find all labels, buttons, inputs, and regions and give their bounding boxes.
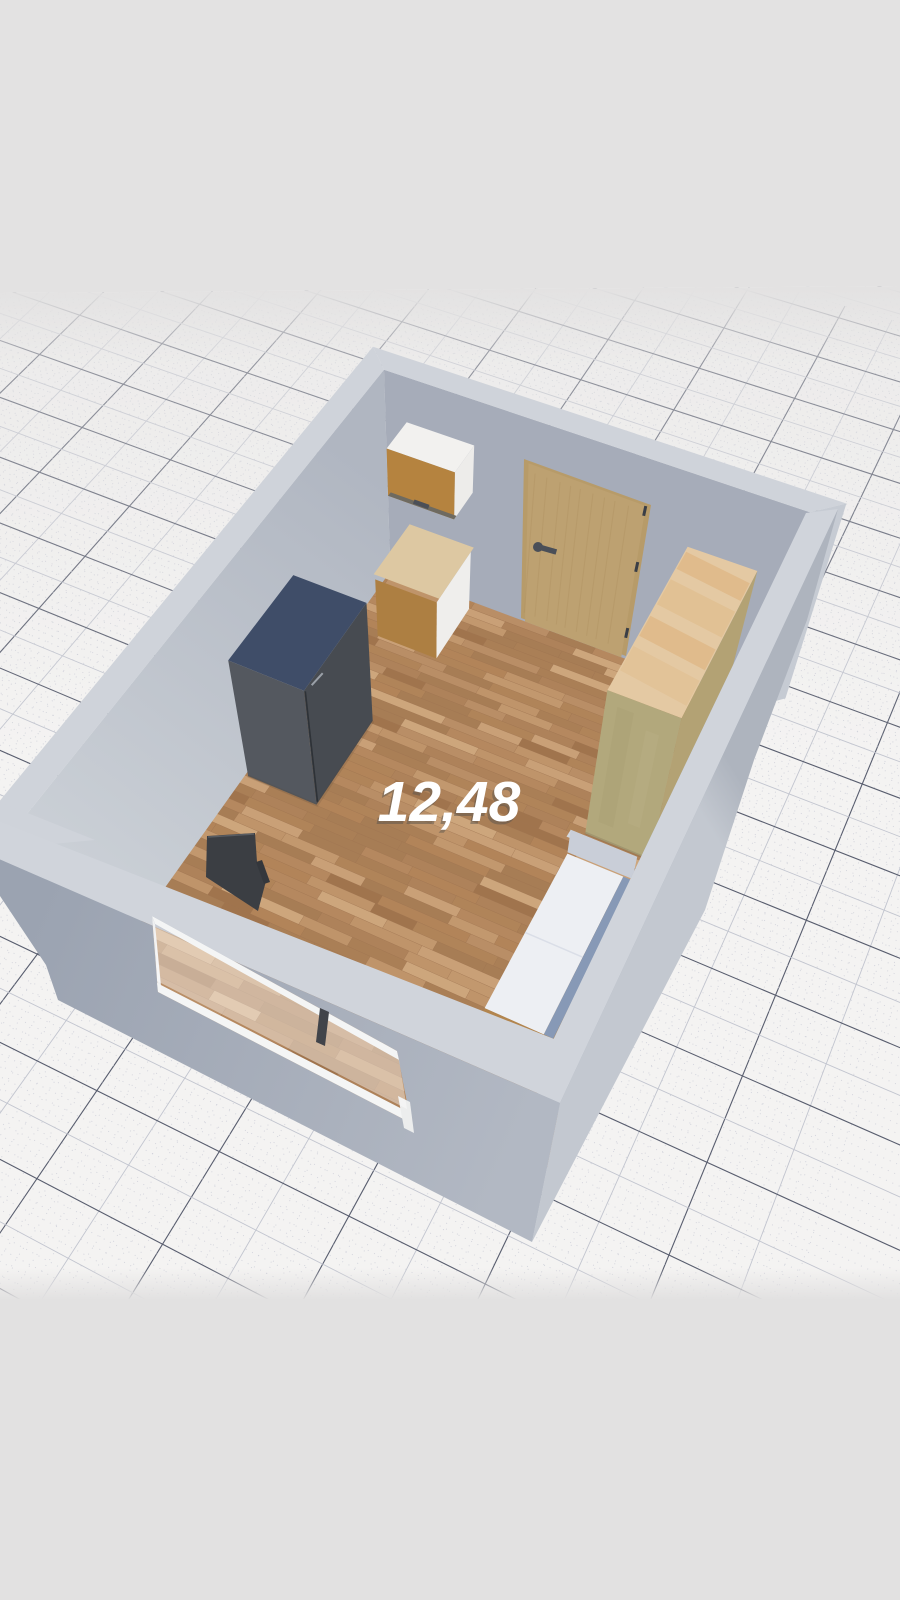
svg-text:12,48: 12,48 <box>378 770 521 834</box>
